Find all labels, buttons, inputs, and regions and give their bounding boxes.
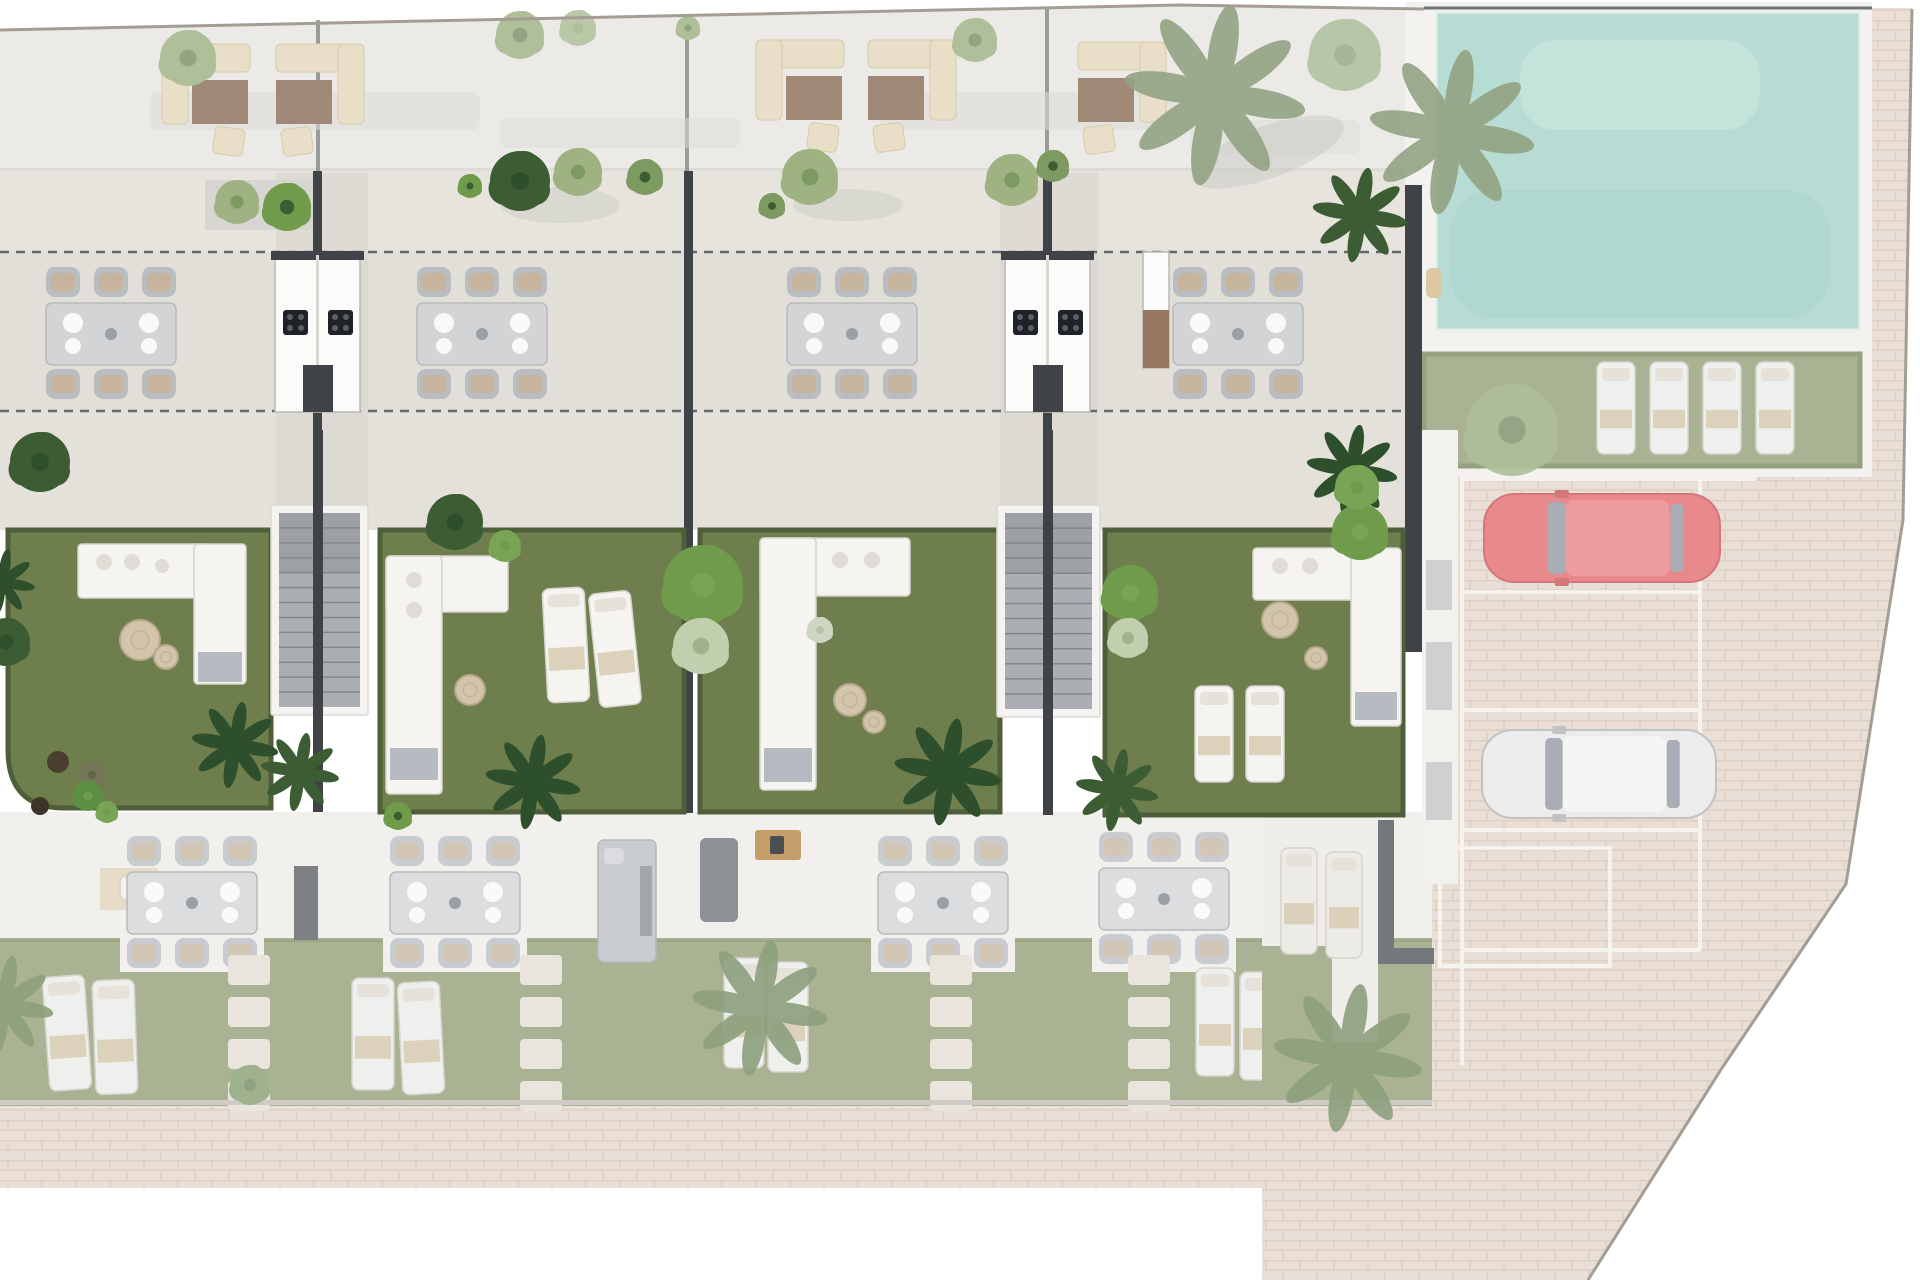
dining-chair-seat (883, 842, 907, 860)
tree-center (968, 33, 981, 46)
stone (520, 1081, 562, 1111)
table-centerpiece (449, 897, 461, 909)
table-centerpiece (1158, 893, 1170, 905)
lounger-pillow (1602, 368, 1630, 381)
sofa-pillow (124, 554, 140, 570)
lower-dining-set (127, 836, 257, 968)
table-plate (485, 907, 501, 923)
boundary-wall (1405, 185, 1422, 652)
roof-shadow-band (500, 118, 740, 148)
dining-chair-seat (51, 273, 75, 291)
lounger-towel (597, 649, 635, 675)
stone (1128, 955, 1170, 985)
terrace-dining-set (1173, 267, 1303, 399)
wood-box-item (770, 836, 784, 854)
dining-chair-seat (132, 842, 156, 860)
plant-pot (47, 751, 69, 773)
table-centerpiece (186, 897, 198, 909)
lower-lounger (1196, 968, 1234, 1076)
roof-sofa-side (338, 44, 364, 124)
lounger-towel (49, 1034, 87, 1059)
garden-pouf (1262, 602, 1298, 638)
lounger-towel (1329, 907, 1359, 928)
garden-pouf (1305, 647, 1327, 669)
utility-box (1426, 560, 1452, 610)
dining-chair-seat (491, 842, 515, 860)
dining-chair-seat (518, 375, 542, 393)
roof-coffee-table (868, 76, 924, 120)
tree-center (88, 771, 96, 779)
table-plate (220, 882, 240, 902)
car-rear-window (1667, 740, 1680, 808)
sofa-pillow (1302, 558, 1318, 574)
table-plate (436, 338, 452, 354)
lawn-lounger (1756, 362, 1794, 454)
roof-armchair (806, 122, 839, 153)
lounger-pillow (1655, 368, 1683, 381)
table-plate (222, 907, 238, 923)
table-plate (407, 882, 427, 902)
sofa-pillow (864, 552, 880, 568)
lounger-pillow (1200, 692, 1228, 705)
cooktop (328, 310, 353, 335)
burner (298, 325, 304, 331)
dining-chair-seat (1178, 273, 1202, 291)
lawn-lounger (1650, 362, 1688, 454)
site-plan-page (0, 0, 1920, 1280)
lower-dining-set (878, 836, 1008, 968)
garden-pouf (834, 684, 866, 716)
tree-center (230, 195, 243, 208)
dining-chair-seat (979, 842, 1003, 860)
dining-chair-seat (840, 375, 864, 393)
lounger-pillow (1761, 368, 1789, 381)
tree-center (1122, 632, 1134, 644)
stone (520, 997, 562, 1027)
car-windshield (1545, 738, 1563, 810)
pouf-top (154, 645, 178, 669)
stone (930, 997, 972, 1027)
tree-center (31, 453, 49, 471)
lounger-pillow (1201, 974, 1229, 987)
dining-chair-seat (470, 273, 494, 291)
dining-chair-seat (1200, 940, 1224, 958)
garden-pouf (154, 645, 178, 669)
lower-wall (1378, 820, 1394, 962)
dining-chair-seat (1274, 273, 1298, 291)
stone (1128, 1039, 1170, 1069)
lounger-towel (403, 1039, 440, 1063)
dining-chair-seat (840, 273, 864, 291)
palm-crown (1439, 119, 1465, 145)
roof-armchair (872, 122, 905, 153)
garden-lounger (1246, 686, 1284, 782)
tree-center (84, 792, 93, 801)
outdoor-kitchen (271, 251, 364, 412)
palm-crown (749, 997, 770, 1018)
roof-sofa-side (756, 40, 782, 120)
red-car (1484, 490, 1720, 586)
sofa-pillow (155, 559, 169, 573)
dining-chair-seat (792, 375, 816, 393)
table-centerpiece (937, 897, 949, 909)
pedestrian-walkway (0, 1106, 1268, 1188)
tree-center (280, 200, 294, 214)
garden-lounger (1195, 686, 1233, 782)
tree-center (1122, 585, 1139, 602)
roof-sofa-side (930, 40, 956, 120)
burner (1062, 325, 1068, 331)
table-plate (1118, 903, 1134, 919)
sofa-pillow (406, 602, 422, 618)
bbq-counter (1143, 310, 1169, 368)
table-plate (804, 313, 824, 333)
cooktop (1013, 310, 1038, 335)
table-plate (1266, 313, 1286, 333)
sofa-pillow (1272, 558, 1288, 574)
garden-sofa (78, 544, 206, 598)
tree-center (244, 1079, 256, 1091)
roof-coffee-table (1078, 78, 1134, 122)
stone (520, 955, 562, 985)
lounger-towel (1249, 736, 1281, 755)
lounger-pillow (1708, 368, 1736, 381)
lounger-pillow (402, 987, 435, 1002)
tree-center (640, 172, 651, 183)
lounger-towel (1600, 410, 1632, 428)
table-plate (973, 907, 989, 923)
roof-armchair (212, 126, 245, 157)
lower-lounger (42, 975, 92, 1092)
lounger-pillow (357, 984, 389, 997)
pool-water-light (1450, 190, 1830, 318)
sofa-blanket (1355, 692, 1397, 720)
roof-coffee-table (276, 80, 332, 124)
burner (1017, 314, 1023, 320)
pouf-top (455, 675, 485, 705)
lounger-towel (1759, 410, 1791, 428)
dining-chair-seat (1104, 940, 1128, 958)
pouf-top (834, 684, 866, 716)
lounger-towel (1199, 1024, 1231, 1046)
terrace-lower-tone (0, 411, 1405, 530)
dining-chair-seat (1104, 838, 1128, 856)
palm-crown (1336, 1046, 1359, 1069)
palm-crown (228, 738, 241, 751)
dining-chair-seat (792, 273, 816, 291)
stone (1128, 997, 1170, 1027)
car-mirror (1552, 726, 1566, 734)
tree-center (1498, 416, 1526, 444)
car-mirror (1555, 578, 1569, 586)
car-mirror (1552, 814, 1566, 822)
lower-dining-set (1099, 832, 1229, 964)
lounger-towel (355, 1036, 391, 1058)
burner (287, 314, 293, 320)
tree-center (1350, 480, 1363, 493)
table-plate (1194, 903, 1210, 919)
dining-chair-seat (443, 842, 467, 860)
lower-lounger (1326, 852, 1362, 958)
dining-chair-seat (422, 375, 446, 393)
tree-center (684, 24, 691, 31)
lounger-towel (97, 1039, 134, 1063)
dining-chair-seat (99, 375, 123, 393)
car-roof (1563, 736, 1666, 812)
lower-wall (640, 866, 652, 936)
car-roof (1565, 500, 1669, 576)
burner (1073, 325, 1079, 331)
dining-chair-seat (147, 375, 171, 393)
table-plate (806, 338, 822, 354)
lower-dark-sofa (700, 838, 738, 922)
car-windshield (1548, 502, 1566, 574)
dining-chair-seat (1226, 273, 1250, 291)
table-plate (139, 313, 159, 333)
pouf-top (863, 711, 885, 733)
sofa-blanket (764, 748, 812, 782)
burner (332, 314, 338, 320)
pouf-top (1305, 647, 1327, 669)
tree-center (1004, 172, 1020, 188)
lounger-towel (1198, 736, 1230, 755)
table-plate (1190, 313, 1210, 333)
terrace-dining-set (787, 267, 917, 399)
tree-center (1334, 44, 1356, 66)
table-plate (1192, 878, 1212, 898)
dining-chair-seat (395, 842, 419, 860)
tree-center (571, 165, 585, 179)
pouf-top (1262, 602, 1298, 638)
tree-center (447, 514, 464, 531)
roof-armchair (1082, 124, 1115, 155)
dining-chair-seat (180, 842, 204, 860)
palm-crown (1353, 208, 1368, 223)
stone (228, 1039, 270, 1069)
lounger-towel (548, 646, 585, 671)
stone (520, 1039, 562, 1069)
lounger-pillow (1286, 854, 1312, 867)
table-plate (483, 882, 503, 902)
dining-chair-seat (422, 273, 446, 291)
roof-coffee-table (192, 80, 248, 124)
tree-center (693, 638, 710, 655)
dining-chair-seat (228, 842, 252, 860)
lower-row (0, 812, 1434, 1111)
tree-center (768, 202, 776, 210)
dining-chair-seat (395, 944, 419, 962)
roof-armchair (280, 126, 313, 157)
walkway-retaining-wall (0, 1100, 1432, 1105)
table-plate (1192, 338, 1208, 354)
dining-chair-seat (147, 273, 171, 291)
sofa-blanket (390, 748, 438, 780)
table-centerpiece (1232, 328, 1244, 340)
garden-pouf (455, 675, 485, 705)
terrace-dining-set (417, 267, 547, 399)
terrace-dining-set (46, 267, 176, 399)
burner (1062, 314, 1068, 320)
dining-chair-seat (888, 375, 912, 393)
tree-center (500, 541, 510, 551)
cooktop (1058, 310, 1083, 335)
burner (343, 314, 349, 320)
outdoor-kitchen (1001, 251, 1094, 412)
table-plate (512, 338, 528, 354)
lounger-towel (1653, 410, 1685, 428)
stone (228, 955, 270, 985)
sofa-blanket (198, 652, 242, 682)
palm-crown (526, 775, 541, 790)
burner (332, 325, 338, 331)
dining-chair-seat (888, 273, 912, 291)
lower-lounger (92, 979, 138, 1094)
garden-lounger (542, 587, 590, 703)
roof-divider (1045, 7, 1049, 171)
dining-chair-seat (51, 375, 75, 393)
burner (287, 325, 293, 331)
palm-crown (294, 766, 306, 778)
table-plate (65, 338, 81, 354)
sofa-pillow (832, 552, 848, 568)
lower-wall (1378, 948, 1434, 964)
tree-center (466, 182, 473, 189)
utility-box (1426, 642, 1452, 710)
plant-pot (31, 797, 49, 815)
dining-chair-seat (979, 944, 1003, 962)
pool-water-light (1520, 40, 1760, 130)
roof-tree (559, 10, 596, 46)
lower-lounger (397, 981, 445, 1095)
burner (1073, 314, 1079, 320)
tree-center (573, 23, 584, 34)
lounger-pillow (1331, 858, 1357, 871)
dining-chair-seat (1226, 375, 1250, 393)
table-plate (141, 338, 157, 354)
palm-crown (940, 764, 957, 781)
burner (1028, 325, 1034, 331)
palm-crown (1111, 784, 1124, 797)
tree-center (394, 812, 402, 820)
table-plate (880, 313, 900, 333)
lower-wall (294, 866, 318, 940)
table-plate (144, 882, 164, 902)
lower-dining-set (390, 836, 520, 968)
tree-center (691, 573, 715, 597)
lounger-pillow (97, 985, 129, 999)
tree-center (802, 169, 819, 186)
table-centerpiece (476, 328, 488, 340)
dining-chair-seat (470, 375, 494, 393)
dining-chair-seat (931, 842, 955, 860)
lower-sofa-pillow (604, 848, 624, 864)
tree-center (511, 172, 529, 190)
garden-pouf (863, 711, 885, 733)
dining-chair-seat (132, 944, 156, 962)
stone (930, 955, 972, 985)
sofa-pillow (96, 554, 112, 570)
stone (930, 1081, 972, 1111)
cooktop (283, 310, 308, 335)
table-plate (510, 313, 530, 333)
dining-chair-seat (1178, 375, 1202, 393)
utility-box (1426, 762, 1452, 820)
table-plate (1268, 338, 1284, 354)
white-car (1482, 726, 1716, 822)
dining-chair-seat (1200, 838, 1224, 856)
floor-plan-canvas (0, 0, 1920, 1280)
car-mirror (1555, 490, 1569, 498)
car-rear-window (1670, 504, 1683, 572)
tree-center (1048, 161, 1058, 171)
tree-center (104, 809, 111, 816)
table-plate (897, 907, 913, 923)
stair-rail-wall (1043, 430, 1053, 815)
palm-crown (1201, 81, 1229, 109)
table-plate (146, 907, 162, 923)
burner (298, 314, 304, 320)
tree-center (1352, 524, 1369, 541)
table-plate (971, 882, 991, 902)
burner (1028, 314, 1034, 320)
table-plate (882, 338, 898, 354)
lawn-lounger (1597, 362, 1635, 454)
lawn-lounger (1703, 362, 1741, 454)
table-plate (409, 907, 425, 923)
burner (343, 325, 349, 331)
tree-center (180, 50, 197, 67)
roof-coffee-table (786, 76, 842, 120)
dining-chair-seat (99, 273, 123, 291)
stone (930, 1039, 972, 1069)
tree-center (513, 28, 527, 42)
lounger-pillow (1251, 692, 1279, 705)
lower-lounger (1281, 848, 1317, 954)
kitchen-island (1033, 365, 1063, 412)
table-plate (1116, 878, 1136, 898)
dining-chair-seat (1274, 375, 1298, 393)
dining-chair-seat (443, 944, 467, 962)
table-centerpiece (846, 328, 858, 340)
dining-chair-seat (1152, 838, 1176, 856)
dining-chair-seat (180, 944, 204, 962)
burner (1017, 325, 1023, 331)
stone (1128, 1081, 1170, 1111)
dining-chair-seat (883, 944, 907, 962)
tree-center (816, 626, 824, 634)
stone (228, 997, 270, 1027)
kitchen-island (303, 365, 333, 412)
dining-chair-seat (518, 273, 542, 291)
lounger-towel (1706, 410, 1738, 428)
table-plate (63, 313, 83, 333)
lounger-pillow (47, 981, 80, 996)
table-plate (434, 313, 454, 333)
table-centerpiece (105, 328, 117, 340)
lounger-pillow (547, 593, 580, 608)
sofa-pillow (406, 572, 422, 588)
lower-lounger (352, 978, 394, 1090)
table-plate (895, 882, 915, 902)
dining-chair-seat (491, 944, 515, 962)
lounger-towel (1284, 903, 1314, 924)
pool-mat (1426, 268, 1442, 298)
